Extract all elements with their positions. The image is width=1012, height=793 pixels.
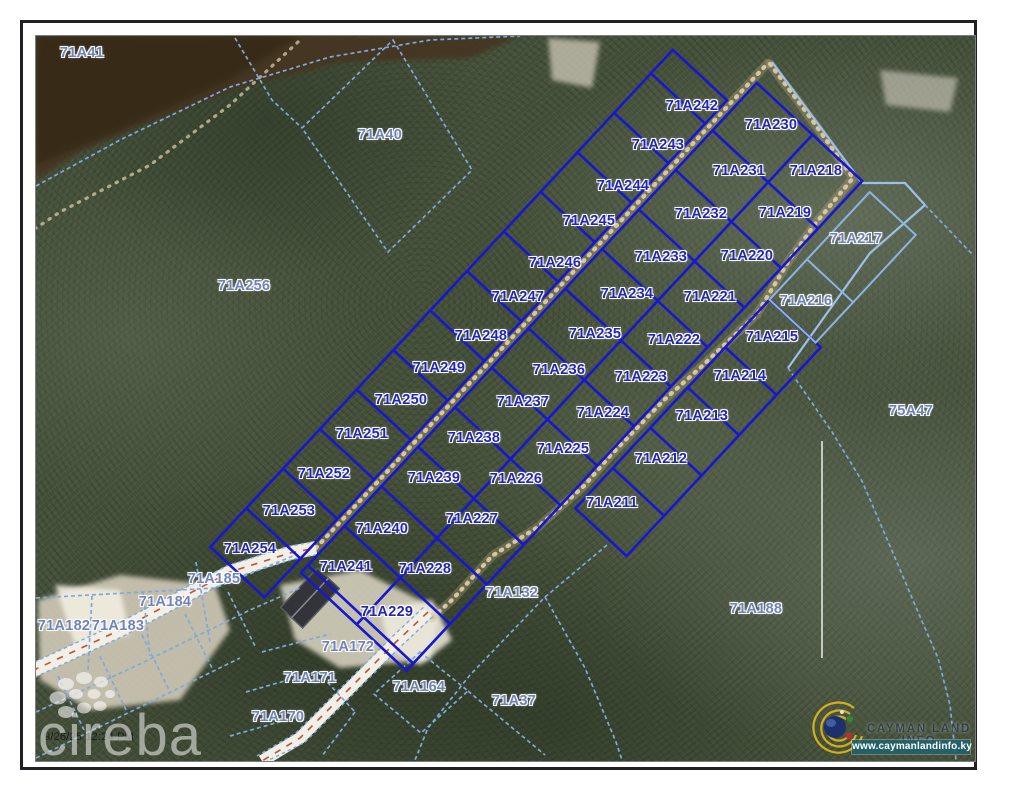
- lot-label: 71A240: [356, 521, 409, 537]
- lot-label: 71A233: [635, 249, 688, 265]
- lot-label: 71A253: [263, 503, 316, 519]
- lot-label: 71A224: [577, 405, 630, 421]
- lot-label: 71A212: [635, 451, 688, 467]
- parcel-label: 71A172: [322, 639, 375, 655]
- lot-label: 71A234: [601, 286, 654, 302]
- lot-label: 71A211: [586, 495, 638, 511]
- lot-label: 71A223: [615, 369, 668, 385]
- parcel-label: 71A256: [218, 278, 271, 294]
- lot-label: 71A213: [676, 408, 729, 424]
- lot-label: 71A214: [714, 368, 767, 384]
- lot-label: 71A232: [675, 206, 728, 222]
- lot-label: 71A247: [492, 289, 545, 305]
- lot-label: 71A250: [375, 392, 428, 408]
- lot-label: 71A244: [597, 178, 650, 194]
- lot-label: 71A215: [746, 329, 799, 345]
- lot-label: 71A221: [684, 289, 737, 305]
- parcel-label: 71A37: [492, 693, 536, 709]
- parcel-label: 71A185: [188, 571, 241, 587]
- parcel-label: 71A183: [92, 618, 145, 634]
- lot-label: 71A241: [320, 559, 373, 575]
- lot-label: 71A225: [537, 441, 590, 457]
- lot-label: 71A243: [632, 137, 685, 153]
- lot-label: 71A239: [408, 470, 461, 486]
- lot-label: 71A222: [648, 332, 701, 348]
- lot-label: 71A251: [336, 426, 389, 442]
- lot-label: 71A220: [721, 248, 774, 264]
- lot-label: 71A237: [497, 394, 550, 410]
- lot-label: 71A252: [298, 466, 351, 482]
- lot-label: 71A231: [713, 163, 766, 179]
- lot-label: 71A227: [446, 511, 499, 527]
- parcel-label: 75A47: [889, 403, 933, 419]
- lot-label: 71A219: [759, 205, 812, 221]
- parcel-label: 71A182: [38, 618, 91, 634]
- lot-label: 71A248: [455, 328, 508, 344]
- lot-label: 71A228: [399, 561, 452, 577]
- caymanlandinfo-url-badge: www.caymanlandinfo.ky: [852, 740, 970, 754]
- lot-label: 71A254: [224, 541, 277, 557]
- lot-label: 71A235: [569, 326, 622, 342]
- parcel-label: 71A184: [139, 594, 192, 610]
- parcel-label: 71A188: [730, 601, 783, 617]
- parcel-label: 71A40: [358, 127, 402, 143]
- listing-photo: 71A24271A24371A24471A24571A24671A24771A2…: [0, 0, 1012, 793]
- lot-label: 71A242: [666, 98, 719, 114]
- lot-label: 71A229: [361, 604, 414, 620]
- parcel-label: 71A171: [284, 670, 337, 686]
- lot-label: 71A218: [790, 163, 843, 179]
- lot-label: 71A236: [533, 362, 586, 378]
- parcel-label: 71A216: [780, 293, 833, 309]
- cireba-watermark: cireba: [38, 702, 202, 762]
- parcel-label: 71A170: [252, 709, 305, 725]
- lot-label: 71A246: [529, 255, 582, 271]
- parcel-label: 71A217: [830, 231, 883, 247]
- parcel-label: 71A132: [486, 585, 539, 601]
- parcel-label: 71A164: [393, 679, 446, 695]
- lot-label: 71A245: [563, 213, 616, 229]
- lot-label: 71A226: [490, 471, 543, 487]
- lot-label: 71A230: [745, 117, 798, 133]
- lot-label: 71A238: [448, 430, 501, 446]
- water-area: [36, 36, 520, 180]
- aerial-map: 71A24271A24371A24471A24571A24671A24771A2…: [35, 35, 976, 762]
- parcel-label: 71A41: [60, 45, 104, 61]
- lot-label: 71A249: [413, 360, 466, 376]
